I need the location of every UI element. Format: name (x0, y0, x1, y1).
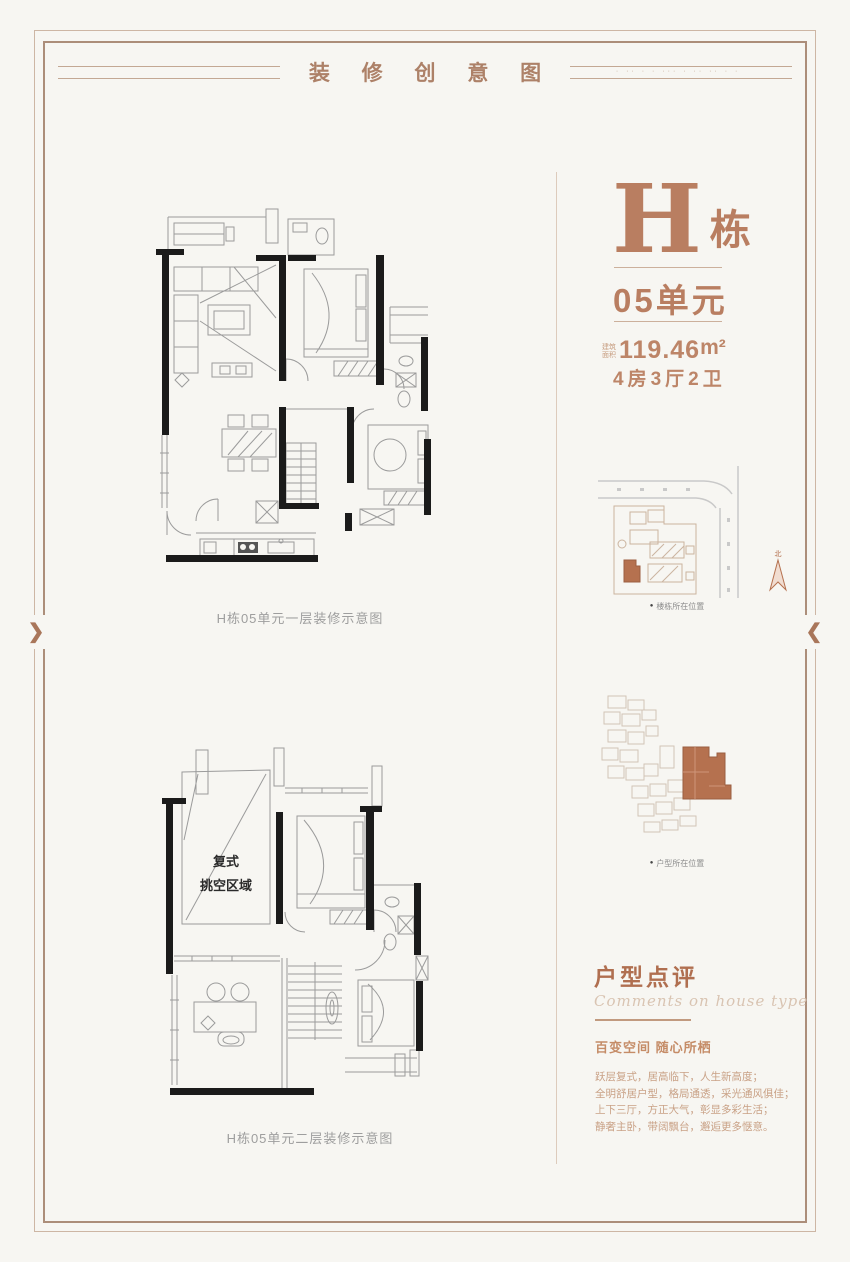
compass: 北 (770, 550, 786, 590)
title-right-rule: · ·· · · ··· · ·· ·· · · (570, 66, 792, 79)
title-left-rule (58, 66, 280, 79)
review-body: 跃层复式，居高临下，人生新高度； 全明舒居户型，格局通透，采光通风俱佳； 上下三… (595, 1069, 813, 1135)
roads-layer (598, 466, 738, 598)
review-heading: 户型点评 (594, 958, 698, 992)
building-word: 栋 (710, 196, 751, 260)
floor1-plan (138, 203, 460, 601)
next-chevron-icon[interactable]: ❮ (801, 615, 827, 649)
plate-highlighted-unit (683, 747, 731, 799)
rooms-summary: 4房3厅2卫 (613, 364, 726, 391)
floor2-plan: 复式 挑空区域 (152, 740, 467, 1125)
compass-north-label: 北 (775, 550, 782, 558)
floor-plate-svg (598, 694, 793, 854)
title-bar: 装 修 创 意 图 · ·· · · ··· · ·· ·· · · (58, 57, 792, 87)
area-label: 建筑 面积 (602, 344, 616, 360)
bullet-icon: ● (650, 860, 654, 866)
site-map: 北 (592, 446, 802, 598)
void-area-label: 复式 挑空区域 (200, 854, 252, 893)
review-subtitle: 百变空间 随心所栖 (595, 1037, 712, 1056)
area-unit: m² (700, 336, 726, 360)
floor2-plan-svg: 复式 挑空区域 (152, 740, 467, 1125)
floor1-caption: H栋05单元一层装修示意图 (140, 608, 460, 627)
review-line: 静奢主卧，带阔飘台，邂逅更多惬意。 (595, 1119, 813, 1136)
site-map-caption: ●楼栋所在位置 (592, 601, 762, 612)
building-letter: H (612, 180, 702, 260)
highlighted-building (624, 560, 640, 582)
rule-under-building (614, 267, 722, 268)
floor2-caption: H栋05单元二层装修示意图 (150, 1128, 470, 1147)
area-block: 建筑 面积 119.46 m² (602, 336, 726, 365)
building-title: H 栋 (612, 180, 751, 260)
site-map-svg: 北 (592, 446, 802, 598)
bullet-icon: ● (650, 603, 654, 609)
void-label-line1: 复式 (212, 854, 239, 869)
floor-plate-caption: ●户型所在位置 (592, 858, 762, 869)
floor1-plan-svg (138, 203, 460, 601)
prev-chevron-icon[interactable]: ❯ (23, 615, 49, 649)
plate-units-layer (602, 696, 696, 832)
unit-number: 05单元 (613, 274, 728, 322)
review-line: 跃层复式，居高临下，人生新高度； (595, 1069, 813, 1086)
review-underline (595, 1019, 691, 1021)
area-value: 119.46 (619, 336, 700, 365)
review-line: 全明舒居户型，格局通透，采光通风俱佳； (595, 1086, 813, 1103)
review-line: 上下三厅，方正大气，彰显多彩生活； (595, 1102, 813, 1119)
void-label-line2: 挑空区域 (200, 878, 252, 893)
rule-under-unit (614, 321, 722, 322)
page-title: 装 修 创 意 图 (296, 57, 554, 87)
floor2-furniture-layer (170, 748, 428, 1088)
vertical-divider (556, 172, 557, 1164)
floor-plate-diagram (598, 694, 793, 854)
review-heading-en: Comments on house type (594, 992, 808, 1010)
title-dots: · ·· · · ··· · ·· ·· · · (570, 66, 786, 77)
